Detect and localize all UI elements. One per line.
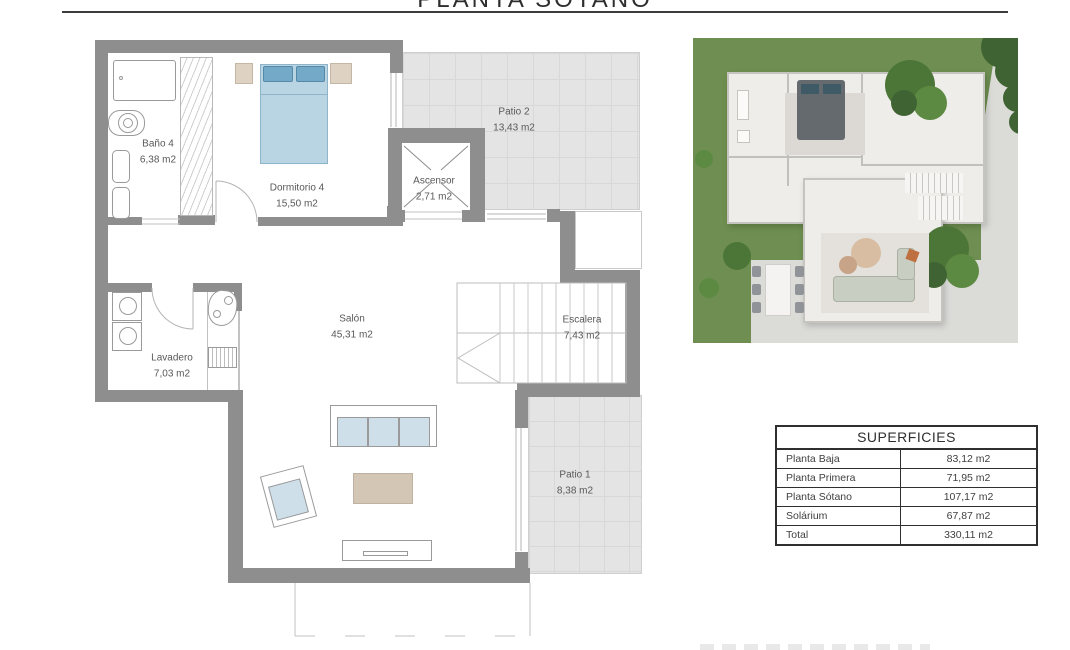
- room-area: 7,43 m2: [563, 328, 602, 344]
- laundry-sink: [206, 289, 239, 328]
- wall: [228, 390, 243, 575]
- room-label-lavadero: Lavadero 7,03 m2: [151, 351, 193, 382]
- bathroom-fixture: [737, 90, 749, 120]
- row-value: 71,95 m2: [901, 469, 1036, 487]
- bush-icon: [723, 242, 751, 270]
- wall: [95, 40, 108, 402]
- dining-chair: [752, 266, 761, 277]
- row-label: Planta Baja: [777, 450, 901, 468]
- bathtub-drain-icon: [119, 76, 123, 80]
- dining-chair: [752, 284, 761, 295]
- tv: [363, 551, 408, 556]
- bed-pillow: [823, 84, 841, 94]
- table-row: Planta Primera 71,95 m2: [777, 469, 1036, 488]
- table-header: SUPERFICIES: [777, 427, 1036, 450]
- room-name: Escalera: [563, 313, 602, 329]
- row-value: 83,12 m2: [901, 450, 1036, 468]
- room-label-patio2: Patio 2 13,43 m2: [493, 105, 535, 136]
- wardrobe: [180, 57, 213, 216]
- bush-icon: [699, 278, 719, 298]
- row-label: Planta Primera: [777, 469, 901, 487]
- room-name: Patio 1: [557, 468, 593, 484]
- bush-icon: [913, 86, 947, 120]
- table-row: Solárium 67,87 m2: [777, 507, 1036, 526]
- bathtub: [113, 60, 176, 101]
- wall: [560, 270, 640, 283]
- room-name: Baño 4: [140, 137, 176, 153]
- coffee-table: [353, 473, 413, 504]
- washer-drum-icon: [119, 297, 137, 315]
- render-3d-overview: [693, 38, 1018, 343]
- bed-sheet-line: [261, 94, 327, 95]
- elevator-door-gap: [405, 210, 462, 222]
- watermark-remnant: [700, 644, 930, 650]
- room-name: Ascensor: [413, 174, 455, 190]
- room-label-patio1: Patio 1 8,38 m2: [557, 468, 593, 499]
- room-label-ascensor: Ascensor 2,71 m2: [413, 174, 455, 205]
- wall: [95, 390, 241, 402]
- toilet-bowl-icon: [123, 118, 133, 128]
- table-row: Planta Sótano 107,17 m2: [777, 488, 1036, 507]
- nightstand: [330, 63, 352, 84]
- room-label-bano4: Baño 4 6,38 m2: [140, 137, 176, 168]
- room-name: Patio 2: [493, 105, 535, 121]
- dining-chair: [795, 284, 804, 295]
- row-value: 107,17 m2: [901, 488, 1036, 506]
- bed-pillow: [801, 84, 819, 94]
- laundry-sink-basin-icon: [213, 310, 221, 318]
- drain-board: [208, 347, 237, 368]
- sofa-cushion: [368, 417, 399, 447]
- table-row: Planta Baja 83,12 m2: [777, 450, 1036, 469]
- wall: [108, 283, 152, 292]
- bush-icon: [695, 150, 713, 168]
- wall: [547, 209, 560, 222]
- room-area: 8,38 m2: [557, 483, 593, 499]
- room-area: 6,38 m2: [140, 152, 176, 168]
- stairs: [905, 173, 963, 193]
- room-area: 45,31 m2: [331, 327, 373, 343]
- wall: [95, 40, 403, 53]
- wall: [515, 390, 528, 428]
- wall: [517, 383, 640, 397]
- row-value: 330,11 m2: [901, 526, 1036, 544]
- washer-drum-icon: [119, 327, 137, 345]
- sofa-cushion: [337, 417, 368, 447]
- bed-pillow: [296, 66, 325, 82]
- room-name: Dormitorio 4: [270, 181, 324, 197]
- bed-pillow: [263, 66, 293, 82]
- dining-chair: [795, 266, 804, 277]
- superficies-table: SUPERFICIES Planta Baja 83,12 m2 Planta …: [775, 425, 1038, 546]
- dining-table: [765, 264, 791, 316]
- room-name: Lavadero: [151, 351, 193, 367]
- row-label: Planta Sótano: [777, 488, 901, 506]
- room-area: 7,03 m2: [151, 366, 193, 382]
- room-name: Salón: [331, 312, 373, 328]
- partition-line: [238, 311, 240, 390]
- table-row: Total 330,11 m2: [777, 526, 1036, 544]
- row-label: Solárium: [777, 507, 901, 525]
- lightwell: [575, 211, 642, 269]
- round-rug: [839, 256, 857, 274]
- sink: [112, 150, 130, 183]
- wall: [258, 217, 390, 226]
- row-label: Total: [777, 526, 901, 544]
- room-label-salon: Salón 45,31 m2: [331, 312, 373, 343]
- room-area: 2,71 m2: [413, 189, 455, 205]
- wall: [178, 215, 215, 225]
- sofa-cushion: [399, 417, 430, 447]
- sink: [112, 187, 130, 219]
- room-area: 13,43 m2: [493, 120, 535, 136]
- room-label-escalera: Escalera 7,43 m2: [563, 313, 602, 344]
- dining-chair: [795, 302, 804, 313]
- interior-wall: [861, 164, 983, 166]
- laundry-sink-basin-icon: [224, 296, 233, 305]
- bush-icon: [891, 90, 917, 116]
- row-value: 67,87 m2: [901, 507, 1036, 525]
- paving: [981, 123, 1018, 263]
- page: PLANTA SÓTANO: [0, 0, 1070, 650]
- dining-chair: [752, 302, 761, 313]
- room-label-dormitorio4: Dormitorio 4 15,50 m2: [270, 181, 324, 212]
- wall: [625, 283, 640, 387]
- interior-wall: [729, 156, 861, 158]
- bush-icon: [945, 254, 979, 288]
- wall: [228, 568, 530, 583]
- nightstand: [235, 63, 253, 84]
- room-area: 15,50 m2: [270, 196, 324, 212]
- stairs: [918, 196, 963, 220]
- bathroom-fixture: [737, 130, 750, 143]
- wall: [390, 52, 403, 73]
